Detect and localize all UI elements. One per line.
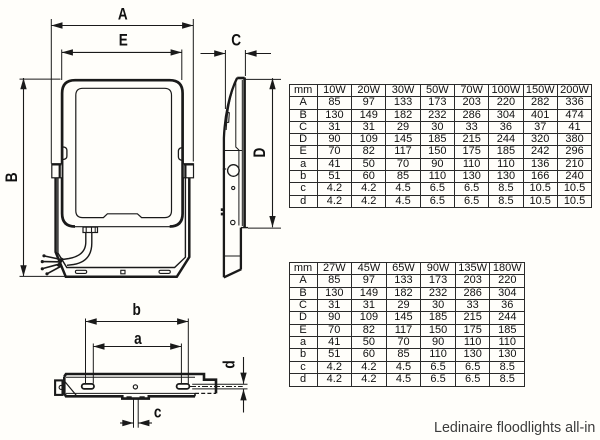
svg-text:a: a [134,330,142,349]
svg-text:E: E [119,31,128,50]
svg-text:C: C [231,31,241,50]
svg-text:c: c [154,403,162,422]
svg-text:b: b [133,301,141,320]
svg-text:B: B [3,172,22,182]
svg-text:D: D [251,148,270,158]
svg-text:d: d [220,360,239,368]
svg-text:A: A [118,5,128,24]
